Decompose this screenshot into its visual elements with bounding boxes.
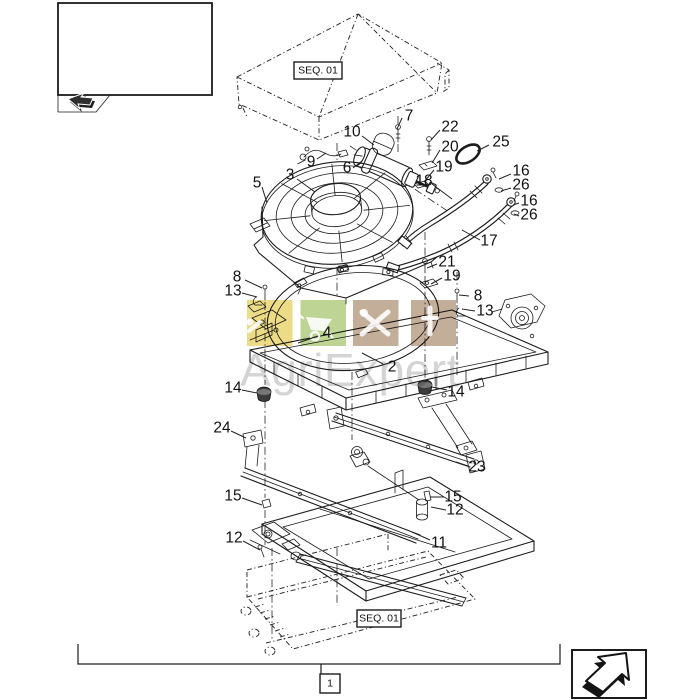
part-number-label[interactable]: 14 [224,380,242,397]
part-number-label[interactable]: 2 [388,359,397,376]
leader-line [456,462,468,466]
hose-18 [398,183,486,249]
part-number-label[interactable]: 7 [405,108,414,125]
part-number-label[interactable]: 9 [307,154,316,171]
part-number-label[interactable]: 13 [224,283,241,300]
leader-line [362,136,374,145]
watermark-text: AgriExpert [240,344,460,396]
seq-ref-bottom-label: SEQ. 01 [359,613,399,625]
part-number-label[interactable]: 26 [512,177,529,194]
exploded-view-drawing: SEQ. 01 [0,0,700,700]
parts-diagram-page: SEQ. 01 [0,0,700,700]
clip-20 [419,161,437,170]
part-number-label[interactable]: 10 [343,124,361,141]
thumbnail-ref-box[interactable] [58,3,212,112]
spacer-12-right [417,499,428,520]
leader-line [431,130,440,140]
seq-ref-top-label: SEQ. 01 [298,65,338,77]
screw-8-left [263,285,267,300]
part-number-label[interactable]: 20 [441,139,459,156]
part-number-label[interactable]: 6 [343,160,352,177]
group-ref-label: 1 [327,678,333,690]
leader-line [297,179,315,192]
screwdriver-square [411,300,456,346]
next-page-box[interactable] [572,650,646,698]
part-number-label[interactable]: 13 [476,303,493,320]
leader-line [231,431,246,438]
leader-line [462,309,475,311]
part-number-label[interactable]: 23 [468,459,485,476]
guard-wire-5 [250,207,444,304]
part-number-label[interactable]: 12 [446,502,463,519]
part-number-label[interactable]: 19 [443,268,460,285]
clip-15-left [262,499,271,508]
leader-line [459,295,469,296]
part-number-label[interactable]: 26 [520,207,537,224]
rail-23 [327,407,485,473]
leader-line [242,498,262,505]
seq-ref-top[interactable]: SEQ. 01 [294,62,342,79]
watermark-squares [247,300,457,346]
part-number-label[interactable]: 22 [441,119,458,136]
leader-line [317,153,326,159]
part-number-label[interactable]: 19 [435,159,452,176]
banjo-fitting-16-26-upper [483,168,503,192]
part-number-label[interactable]: 15 [224,488,241,505]
screw-12-left [258,545,264,557]
seq-ref-bottom[interactable]: SEQ. 01 [357,610,401,627]
part-number-label[interactable]: 17 [480,233,497,250]
leader-line [499,174,511,179]
wrench-square [247,300,293,346]
leader-line [431,507,446,510]
part-number-label[interactable]: 5 [253,175,262,192]
leader-line [242,293,257,297]
part-number-label[interactable]: 24 [213,420,231,437]
rail-24 [241,430,420,543]
group-ref-box[interactable]: 1 [320,674,340,693]
part-number-label[interactable]: 18 [415,173,432,190]
screw-22 [427,137,432,155]
part-number-label[interactable]: 14 [447,384,465,401]
platform-11 [262,447,534,602]
hood-outline [237,14,449,140]
leader-line [243,541,260,550]
part-number-label[interactable]: 12 [225,530,242,547]
leader-line [245,280,262,288]
part-number-label[interactable]: 4 [323,325,332,342]
group-bracket [78,644,560,674]
part-number-label[interactable]: 3 [286,167,295,184]
part-number-label[interactable]: 25 [492,134,509,151]
part-number-label[interactable]: 11 [431,535,447,552]
